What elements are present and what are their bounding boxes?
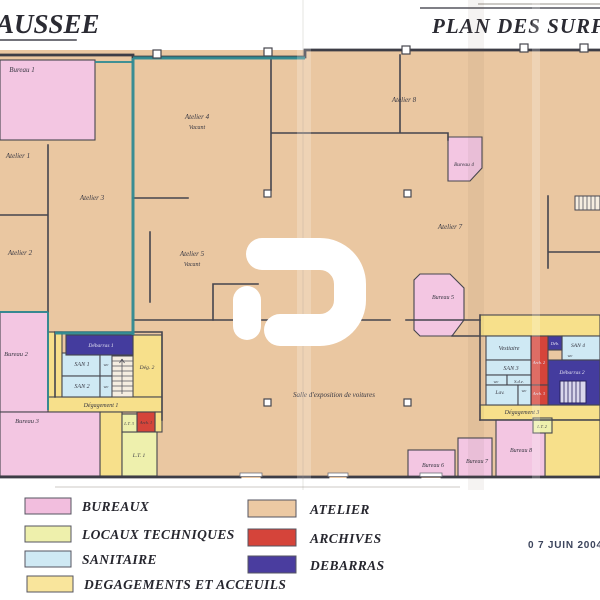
legend-swatch-archives bbox=[248, 529, 296, 546]
legend-swatch-locaux-techniques bbox=[25, 526, 71, 542]
label-wc-4: wc bbox=[522, 388, 527, 393]
label-wc-5: wc bbox=[568, 353, 573, 358]
legend-label-archives: ARCHIVES bbox=[309, 531, 381, 546]
label-lav: Lav. bbox=[494, 390, 504, 396]
label-bureau-3: Bureau 3 bbox=[15, 418, 40, 425]
scanned-floor-plan-page: AUSSEE PLAN DES SURFAC bbox=[0, 0, 600, 600]
stairs-icon-debarras-2 bbox=[560, 381, 586, 403]
date-stamp: 0 7 JUIN 2004 bbox=[528, 540, 600, 551]
legend-label-bureaux: BUREAUX bbox=[81, 499, 150, 514]
label-bureau-2: Bureau 2 bbox=[4, 351, 29, 358]
legend-label-locaux-techniques: LOCAUX TECHNIQUES bbox=[81, 527, 235, 542]
label-deb: Déb. bbox=[550, 341, 560, 346]
legend-swatch-debarras bbox=[248, 556, 296, 573]
label-lt-1: L.T. 1 bbox=[132, 453, 146, 459]
floor-plan-canvas: AUSSEE PLAN DES SURFAC bbox=[0, 0, 600, 600]
door-gap bbox=[328, 473, 348, 477]
legend-swatch-atelier bbox=[248, 500, 296, 517]
label-sde: S.d.e. bbox=[514, 379, 524, 384]
room-bureau-5 bbox=[414, 274, 464, 336]
label-bureau-5: Bureau 5 bbox=[432, 295, 454, 301]
label-san-2: SAN 2 bbox=[74, 384, 89, 390]
corridor-sliver-2 bbox=[155, 412, 162, 432]
label-bureau-8: Bureau 8 bbox=[510, 448, 532, 454]
label-san-3: SAN 3 bbox=[503, 366, 518, 372]
label-vestiaire: Vestiaire bbox=[499, 346, 520, 352]
label-atelier-4-status: Vacant bbox=[189, 125, 206, 131]
legend-swatch-degagements bbox=[27, 576, 73, 592]
legend-label-degagements: DEGAGEMENTS ET ACCEUILS bbox=[83, 577, 286, 592]
label-atelier-4: Atelier 4 bbox=[184, 113, 210, 121]
label-deg-2: Dég. 2 bbox=[139, 365, 155, 371]
label-atelier-5: Atelier 5 bbox=[179, 250, 205, 258]
label-debarras-2: Débarras 2 bbox=[558, 370, 584, 376]
legend-swatch-bureaux bbox=[25, 498, 71, 514]
legend-label-atelier: ATELIER bbox=[309, 502, 370, 517]
corridor-bottom-right bbox=[545, 420, 600, 477]
legend-label-sanitaire: SANITAIRE bbox=[82, 552, 157, 567]
page-title-right: PLAN DES SURFAC bbox=[431, 14, 600, 38]
door-gap bbox=[420, 473, 442, 477]
label-atelier-3: Atelier 3 bbox=[79, 194, 105, 202]
label-san-4: SAN 4 bbox=[571, 342, 585, 349]
label-atelier-5-status: Vacant bbox=[184, 262, 201, 268]
label-atelier-1: Atelier 1 bbox=[5, 152, 30, 160]
legend-label-debarras: DEBARRAS bbox=[309, 558, 384, 573]
stairs-icon-top-right bbox=[575, 196, 600, 210]
label-lt-3: L.T. 3 bbox=[123, 421, 134, 426]
label-bureau-1: Bureau 1 bbox=[9, 66, 35, 74]
stairs-icon-main bbox=[112, 356, 133, 397]
label-atelier-8: Atelier 8 bbox=[391, 96, 417, 104]
page-title-left: AUSSEE bbox=[0, 9, 100, 39]
label-bureau-6: Bureau 6 bbox=[422, 463, 444, 469]
legend-swatch-sanitaire bbox=[25, 551, 71, 567]
label-degagement-1: Dégagement 1 bbox=[83, 403, 119, 409]
label-wc-1: wc bbox=[104, 362, 109, 367]
legend: BUREAUX LOCAUX TECHNIQUES SANITAIRE DEGA… bbox=[25, 498, 384, 592]
door-gap bbox=[240, 473, 262, 477]
label-wc-2: wc bbox=[104, 384, 109, 389]
label-san-1: SAN 1 bbox=[74, 362, 89, 368]
label-atelier-2: Atelier 2 bbox=[7, 249, 33, 257]
label-arch-1: Arch. 1 bbox=[139, 420, 152, 425]
label-wc-3: wc bbox=[494, 379, 499, 384]
label-debarras-1: Débarras 1 bbox=[87, 343, 113, 349]
entrance-hall bbox=[100, 412, 122, 476]
room-bureau-2 bbox=[0, 312, 48, 412]
label-atelier-7: Atelier 7 bbox=[437, 223, 463, 231]
